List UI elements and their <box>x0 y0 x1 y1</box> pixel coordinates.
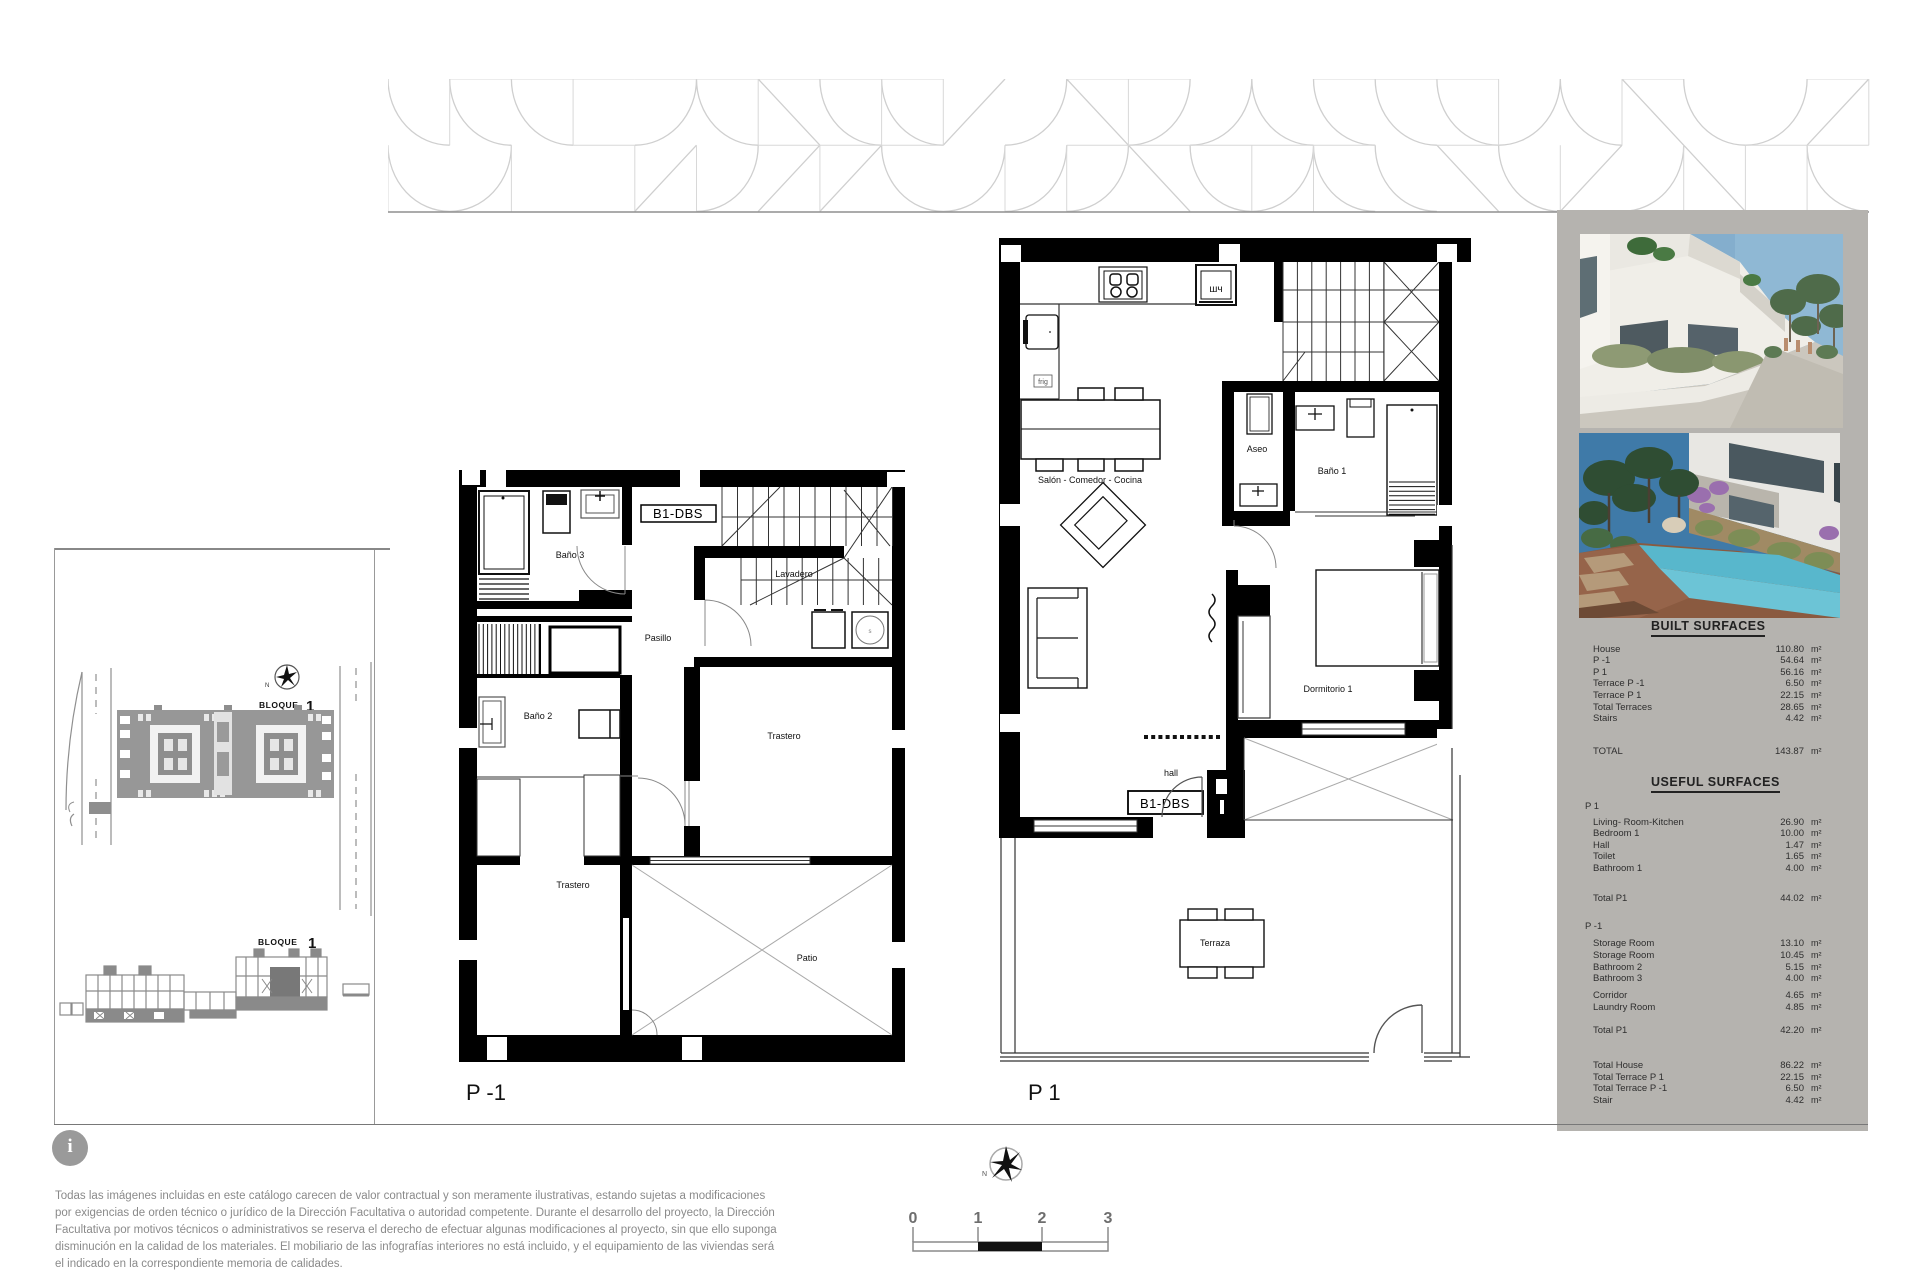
svg-text:Baño 3: Baño 3 <box>556 550 585 560</box>
svg-text:B1-DBS: B1-DBS <box>653 506 703 521</box>
svg-text:шч: шч <box>1209 284 1222 295</box>
svg-text:Trastero: Trastero <box>767 731 800 741</box>
svg-text:Patio: Patio <box>797 953 818 963</box>
svg-text:hall: hall <box>1164 768 1178 778</box>
svg-text:Baño 2: Baño 2 <box>524 711 553 721</box>
svg-text:Aseo: Aseo <box>1247 444 1268 454</box>
svg-text:Trastero: Trastero <box>556 880 589 890</box>
svg-text:BLOQUE: BLOQUE <box>258 937 297 947</box>
svg-text:0: 0 <box>909 1210 918 1227</box>
svg-text:N: N <box>265 683 269 689</box>
svg-text:1: 1 <box>974 1210 983 1227</box>
svg-text:Terraza: Terraza <box>1200 938 1230 948</box>
svg-text:Baño 1: Baño 1 <box>1318 466 1347 476</box>
svg-text:Pasillo: Pasillo <box>645 633 672 643</box>
svg-text:Lavadero: Lavadero <box>775 569 813 579</box>
svg-text:frig: frig <box>1038 379 1048 386</box>
svg-text:s: s <box>869 629 872 635</box>
svg-text:Salón - Comedor - Cocina: Salón - Comedor - Cocina <box>1038 475 1142 485</box>
svg-text:3: 3 <box>1104 1210 1113 1227</box>
svg-text:N: N <box>982 1171 987 1178</box>
svg-text:Dormitorio 1: Dormitorio 1 <box>1303 684 1352 694</box>
svg-text:B1-DBS: B1-DBS <box>1140 796 1190 811</box>
svg-text:2: 2 <box>1038 1210 1047 1227</box>
svg-text:BLOQUE: BLOQUE <box>259 700 298 710</box>
